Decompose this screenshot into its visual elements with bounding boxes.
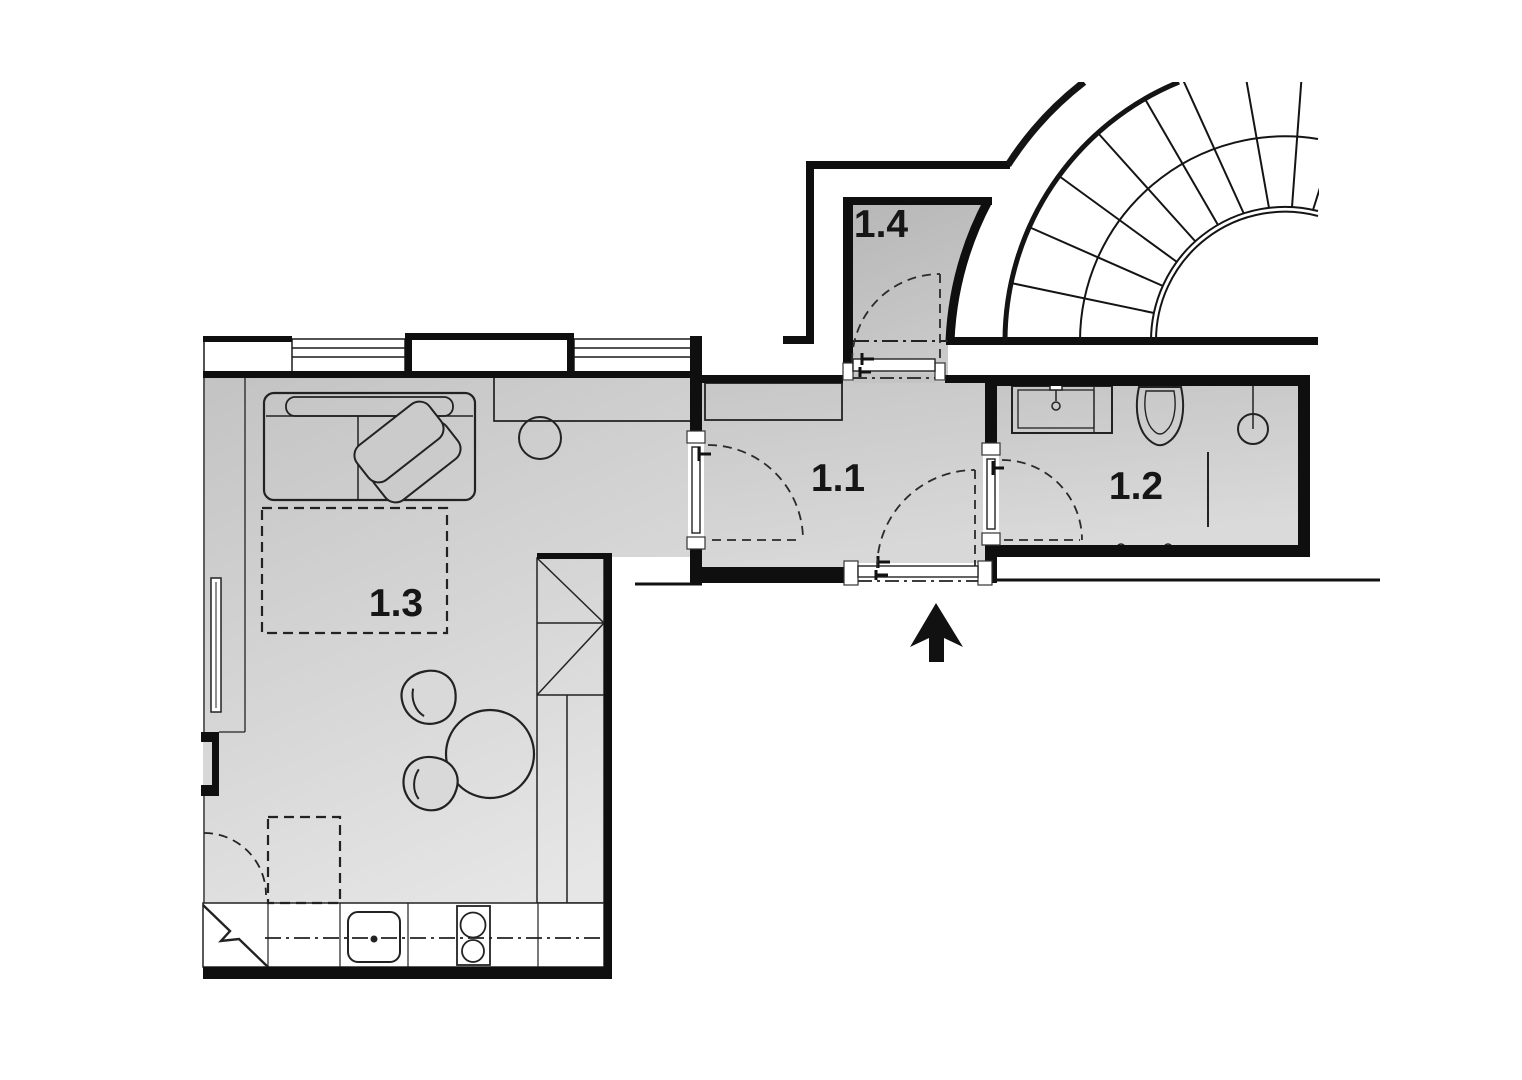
- room-label-1-3: 1.3: [369, 582, 423, 625]
- spiral-staircase: [1005, 45, 1360, 341]
- room-label-1-4: 1.4: [854, 203, 909, 246]
- window: [292, 339, 405, 371]
- stairwell-outer-wall-arc: [1008, 82, 1084, 165]
- kitchen-counter: [203, 903, 604, 967]
- entrance-arrow: [910, 603, 963, 662]
- room-label-1-2: 1.2: [1109, 465, 1163, 508]
- door-leaf: [853, 359, 935, 371]
- stair-inner-arc: [1151, 207, 1318, 341]
- radiator: [211, 578, 221, 712]
- floor-plan: 1.1 1.2 1.3 1.4: [0, 0, 1522, 1080]
- floor-plan-canvas: 1.1 1.2 1.3 1.4: [0, 0, 1522, 1080]
- stair-outer-arc: [1005, 82, 1179, 341]
- room-floors: [203, 204, 1298, 967]
- room-label-1-1: 1.1: [811, 457, 865, 500]
- stair-treads: [1011, 45, 1360, 313]
- window: [574, 339, 690, 371]
- stair-inner-arc: [1156, 212, 1318, 341]
- cooktop: [457, 906, 490, 965]
